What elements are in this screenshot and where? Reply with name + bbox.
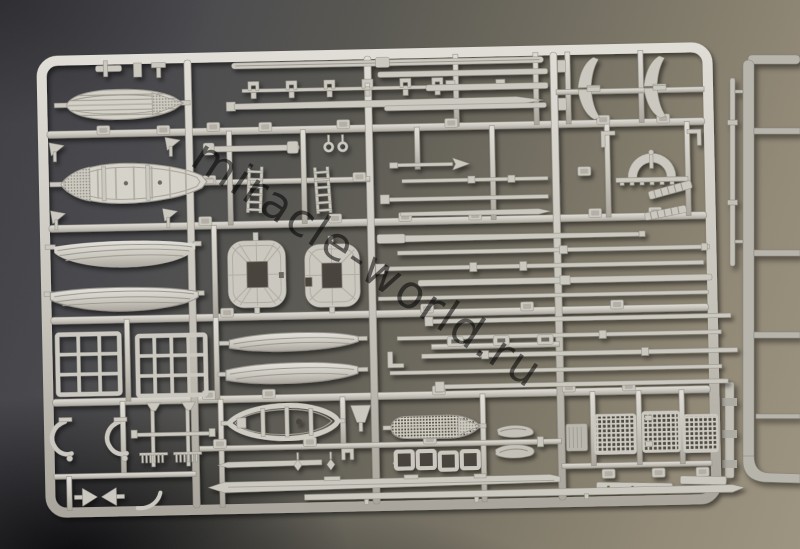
sprue-photo-svg <box>0 0 800 549</box>
film-grain <box>0 0 800 549</box>
photo-frame: miracle-world.ru <box>0 0 800 549</box>
